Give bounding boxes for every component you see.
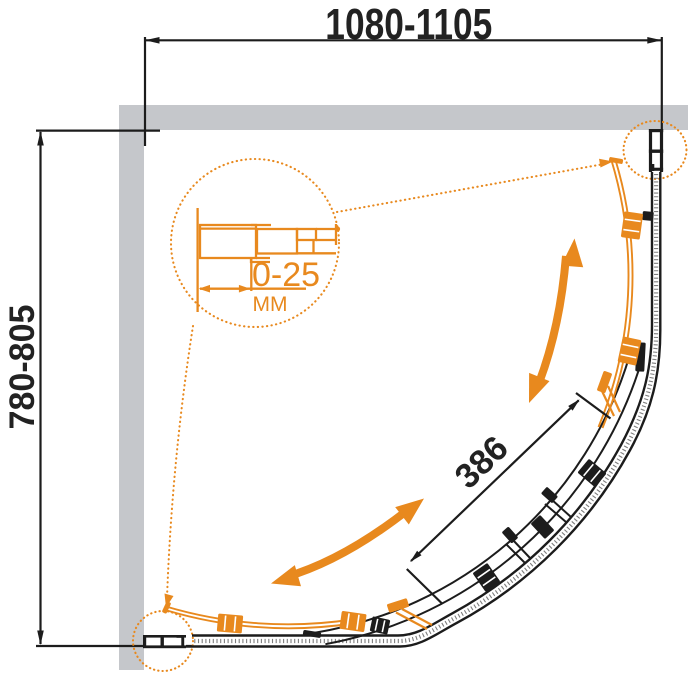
svg-text:780-805: 780-805 [3, 305, 42, 430]
svg-text:1080-1105: 1080-1105 [325, 0, 492, 49]
svg-text:0-25: 0-25 [252, 256, 320, 294]
svg-text:MM: MM [253, 293, 288, 316]
